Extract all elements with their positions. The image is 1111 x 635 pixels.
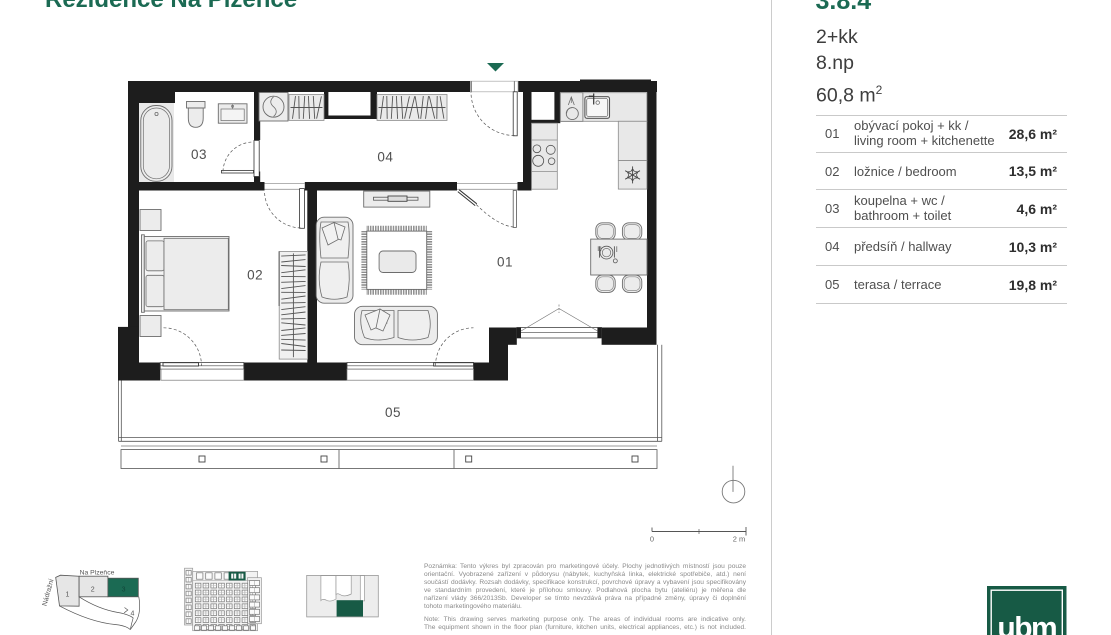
svg-text:02: 02 xyxy=(247,268,263,283)
svg-text:2: 2 xyxy=(91,587,95,594)
svg-text:4: 4 xyxy=(131,611,135,618)
svg-text:05: 05 xyxy=(385,405,401,420)
svg-text:01: 01 xyxy=(497,255,513,270)
svg-text:Na Plzeňce: Na Plzeňce xyxy=(80,570,115,577)
svg-text:3: 3 xyxy=(122,587,126,594)
svg-text:ubm: ubm xyxy=(997,612,1056,635)
svg-text:2 m: 2 m xyxy=(733,535,746,544)
svg-text:04: 04 xyxy=(377,150,393,165)
svg-text:1: 1 xyxy=(66,592,70,599)
svg-text:Nádražní: Nádražní xyxy=(42,578,56,607)
svg-text:0: 0 xyxy=(650,535,654,544)
svg-text:03: 03 xyxy=(191,147,207,162)
